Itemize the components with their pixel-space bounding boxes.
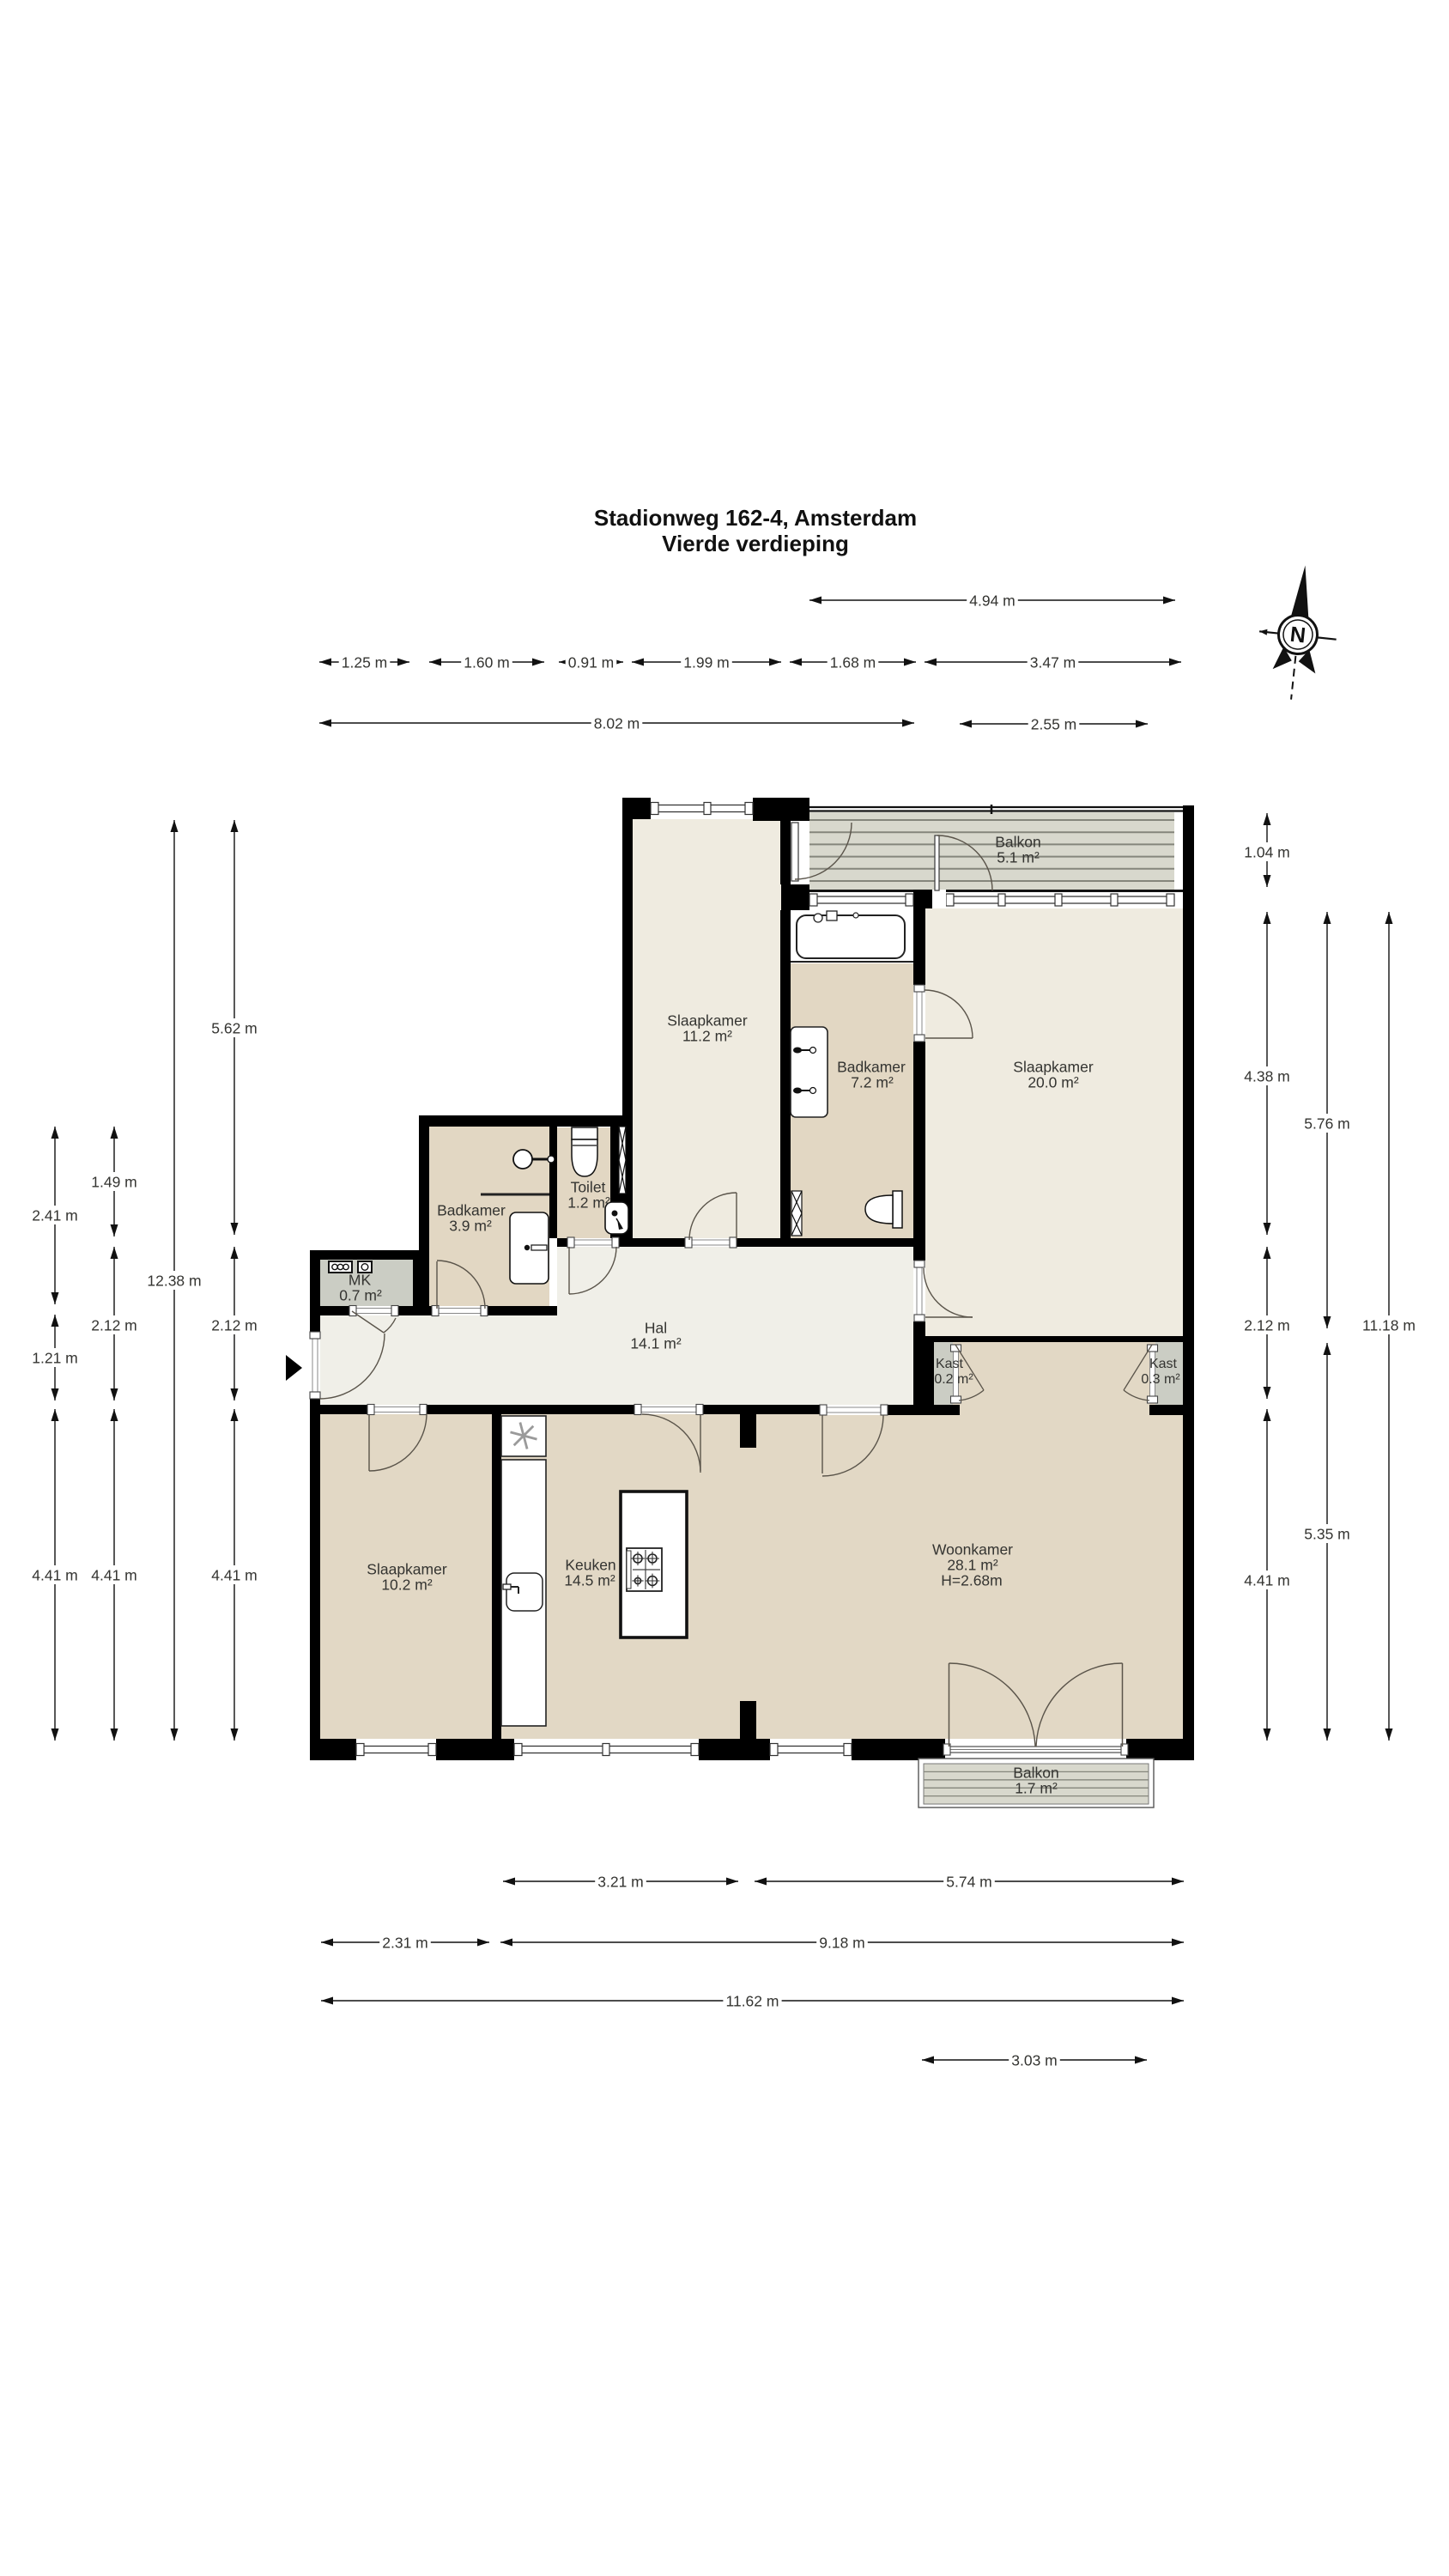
svg-text:3.47 m: 3.47 m bbox=[1030, 654, 1076, 671]
svg-text:4.41 m: 4.41 m bbox=[32, 1567, 78, 1584]
svg-text:4.41 m: 4.41 m bbox=[211, 1567, 258, 1584]
svg-text:3.03 m: 3.03 m bbox=[1011, 2052, 1058, 2069]
svg-text:5.62 m: 5.62 m bbox=[211, 1020, 258, 1037]
svg-text:12.38 m: 12.38 m bbox=[147, 1273, 201, 1290]
svg-text:8.02 m: 8.02 m bbox=[594, 715, 640, 732]
svg-text:20.0 m²: 20.0 m² bbox=[1028, 1074, 1078, 1091]
svg-text:2.12 m: 2.12 m bbox=[91, 1317, 137, 1334]
svg-text:3.21 m: 3.21 m bbox=[597, 1874, 644, 1891]
svg-text:Kast: Kast bbox=[936, 1357, 964, 1371]
svg-text:10.2 m²: 10.2 m² bbox=[381, 1577, 432, 1594]
svg-text:2.31 m: 2.31 m bbox=[382, 1935, 428, 1952]
svg-text:Balkon: Balkon bbox=[995, 834, 1041, 851]
svg-text:5.1 m²: 5.1 m² bbox=[997, 849, 1040, 866]
svg-text:5.35 m: 5.35 m bbox=[1304, 1526, 1350, 1543]
svg-text:Vierde verdieping: Vierde verdieping bbox=[662, 531, 849, 556]
svg-text:7.2 m²: 7.2 m² bbox=[851, 1074, 894, 1091]
svg-text:0.91 m: 0.91 m bbox=[568, 654, 615, 671]
svg-text:1.25 m: 1.25 m bbox=[342, 654, 388, 671]
svg-text:1.7 m²: 1.7 m² bbox=[1015, 1780, 1058, 1797]
svg-text:1.21 m: 1.21 m bbox=[32, 1350, 78, 1367]
svg-text:Stadionweg 162-4, Amsterdam: Stadionweg 162-4, Amsterdam bbox=[594, 505, 917, 531]
svg-text:11.18 m: 11.18 m bbox=[1362, 1317, 1416, 1334]
svg-text:N: N bbox=[1288, 623, 1307, 648]
svg-text:1.68 m: 1.68 m bbox=[830, 654, 876, 671]
svg-text:3.9 m²: 3.9 m² bbox=[449, 1218, 492, 1235]
svg-text:4.41 m: 4.41 m bbox=[1244, 1572, 1290, 1589]
svg-text:4.94 m: 4.94 m bbox=[969, 592, 1016, 610]
svg-text:Kast: Kast bbox=[1149, 1357, 1178, 1371]
svg-text:11.2 m²: 11.2 m² bbox=[682, 1028, 732, 1045]
svg-text:2.12 m: 2.12 m bbox=[1244, 1317, 1290, 1334]
svg-text:MK: MK bbox=[349, 1272, 372, 1289]
svg-text:2.41 m: 2.41 m bbox=[32, 1207, 78, 1224]
svg-text:5.74 m: 5.74 m bbox=[946, 1874, 992, 1891]
svg-text:9.18 m: 9.18 m bbox=[819, 1935, 865, 1952]
svg-text:2.12 m: 2.12 m bbox=[211, 1317, 258, 1334]
svg-text:1.49 m: 1.49 m bbox=[91, 1174, 137, 1191]
svg-text:14.1 m²: 14.1 m² bbox=[630, 1335, 681, 1352]
svg-text:Slaapkamer: Slaapkamer bbox=[367, 1561, 447, 1578]
svg-text:0.2 m²: 0.2 m² bbox=[934, 1372, 973, 1387]
svg-text:Woonkamer: Woonkamer bbox=[932, 1541, 1013, 1558]
svg-text:Balkon: Balkon bbox=[1013, 1765, 1059, 1782]
svg-text:1.2 m²: 1.2 m² bbox=[567, 1194, 610, 1212]
svg-text:0.7 m²: 0.7 m² bbox=[339, 1287, 382, 1304]
svg-text:0.3 m²: 0.3 m² bbox=[1141, 1372, 1180, 1387]
svg-text:1.60 m: 1.60 m bbox=[464, 654, 510, 671]
svg-text:Slaapkamer: Slaapkamer bbox=[1013, 1059, 1094, 1076]
svg-text:Badkamer: Badkamer bbox=[437, 1202, 506, 1219]
svg-text:5.76 m: 5.76 m bbox=[1304, 1115, 1350, 1133]
svg-text:Toilet: Toilet bbox=[571, 1179, 606, 1196]
svg-text:1.04 m: 1.04 m bbox=[1244, 844, 1290, 861]
svg-text:Badkamer: Badkamer bbox=[837, 1059, 906, 1076]
svg-text:4.41 m: 4.41 m bbox=[91, 1567, 137, 1584]
svg-text:Slaapkamer: Slaapkamer bbox=[667, 1012, 748, 1030]
svg-text:2.55 m: 2.55 m bbox=[1031, 716, 1077, 733]
svg-text:Keuken: Keuken bbox=[565, 1557, 615, 1574]
svg-text:1.99 m: 1.99 m bbox=[683, 654, 730, 671]
svg-text:H=2.68m: H=2.68m bbox=[941, 1572, 1003, 1589]
svg-text:28.1 m²: 28.1 m² bbox=[947, 1557, 997, 1574]
svg-text:4.38 m: 4.38 m bbox=[1244, 1068, 1290, 1085]
svg-text:Hal: Hal bbox=[645, 1320, 667, 1337]
svg-text:14.5 m²: 14.5 m² bbox=[564, 1572, 615, 1589]
svg-text:11.62 m: 11.62 m bbox=[726, 1993, 779, 2010]
